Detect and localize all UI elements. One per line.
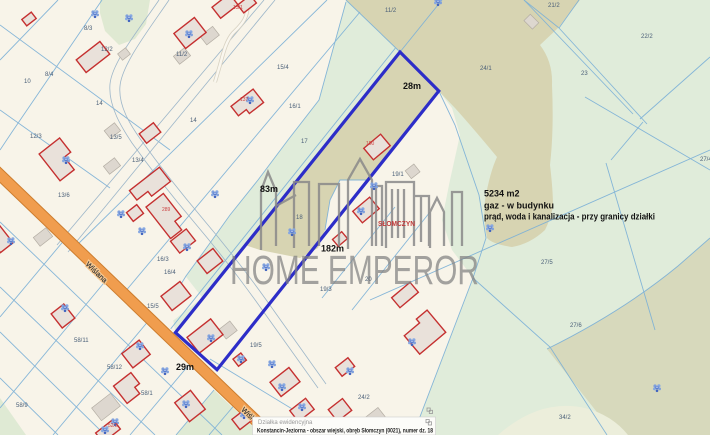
svg-text:HOME EMPEROR: HOME EMPEROR [230, 247, 479, 293]
svg-text:23: 23 [581, 71, 588, 77]
svg-text:Działka ewidencyjna: Działka ewidencyjna [258, 420, 313, 426]
svg-text:8/4: 8/4 [45, 72, 54, 78]
svg-text:16/4: 16/4 [164, 270, 176, 276]
svg-text:10: 10 [24, 79, 31, 85]
svg-text:16/1: 16/1 [289, 104, 301, 110]
svg-text:15/5: 15/5 [147, 304, 159, 310]
svg-text:27/6: 27/6 [570, 323, 582, 329]
svg-text:8/3: 8/3 [84, 26, 93, 32]
svg-text:13/5: 13/5 [110, 135, 122, 141]
svg-text:137: 137 [240, 97, 249, 103]
svg-text:13/4: 13/4 [132, 158, 144, 164]
svg-text:27/5: 27/5 [541, 260, 553, 266]
svg-text:289: 289 [162, 207, 171, 213]
svg-text:28m: 28m [403, 81, 421, 91]
svg-text:19/5: 19/5 [250, 343, 262, 349]
svg-text:14: 14 [96, 101, 103, 107]
svg-text:20: 20 [365, 277, 372, 283]
svg-text:58/1: 58/1 [141, 391, 153, 397]
svg-text:14: 14 [190, 118, 197, 124]
svg-text:12/3: 12/3 [30, 134, 42, 140]
svg-text:52/2: 52/2 [108, 423, 118, 429]
svg-text:12/2: 12/2 [101, 47, 113, 53]
svg-text:83m: 83m [260, 184, 278, 194]
svg-text:prąd, woda i kanalizacja - prz: prąd, woda i kanalizacja - przy granicy … [484, 212, 655, 222]
svg-text:13/6: 13/6 [58, 193, 70, 199]
svg-text:27/4: 27/4 [700, 157, 710, 163]
svg-text:gaz - w budynku: gaz - w budynku [484, 201, 554, 211]
svg-text:58/9: 58/9 [16, 403, 28, 409]
svg-text:16/3: 16/3 [157, 257, 169, 263]
svg-text:58/11: 58/11 [74, 338, 89, 344]
svg-text:19/3: 19/3 [320, 287, 332, 293]
svg-text:11/2: 11/2 [176, 52, 188, 58]
svg-text:5234 m2: 5234 m2 [484, 189, 520, 199]
svg-text:SŁOMCZYN: SŁOMCZYN [378, 221, 415, 228]
svg-text:24/2: 24/2 [358, 395, 370, 401]
svg-text:11/2: 11/2 [385, 8, 397, 14]
svg-text:17: 17 [301, 139, 308, 145]
svg-text:182m: 182m [321, 244, 344, 254]
svg-text:29m: 29m [176, 362, 194, 372]
svg-text:21/2: 21/2 [548, 3, 560, 9]
svg-text:22/2: 22/2 [641, 34, 653, 40]
svg-text:18: 18 [296, 215, 303, 221]
svg-text:24/1: 24/1 [480, 66, 492, 72]
svg-text:34/2: 34/2 [559, 415, 571, 421]
svg-text:150: 150 [366, 141, 375, 147]
svg-text:Konstancin-Jeziorna - obszar w: Konstancin-Jeziorna - obszar wiejski, ob… [257, 428, 433, 435]
svg-text:15/4: 15/4 [277, 65, 289, 71]
svg-text:58/12: 58/12 [107, 365, 123, 371]
svg-text:19/1: 19/1 [392, 172, 404, 178]
svg-text:13/1: 13/1 [233, 5, 243, 11]
